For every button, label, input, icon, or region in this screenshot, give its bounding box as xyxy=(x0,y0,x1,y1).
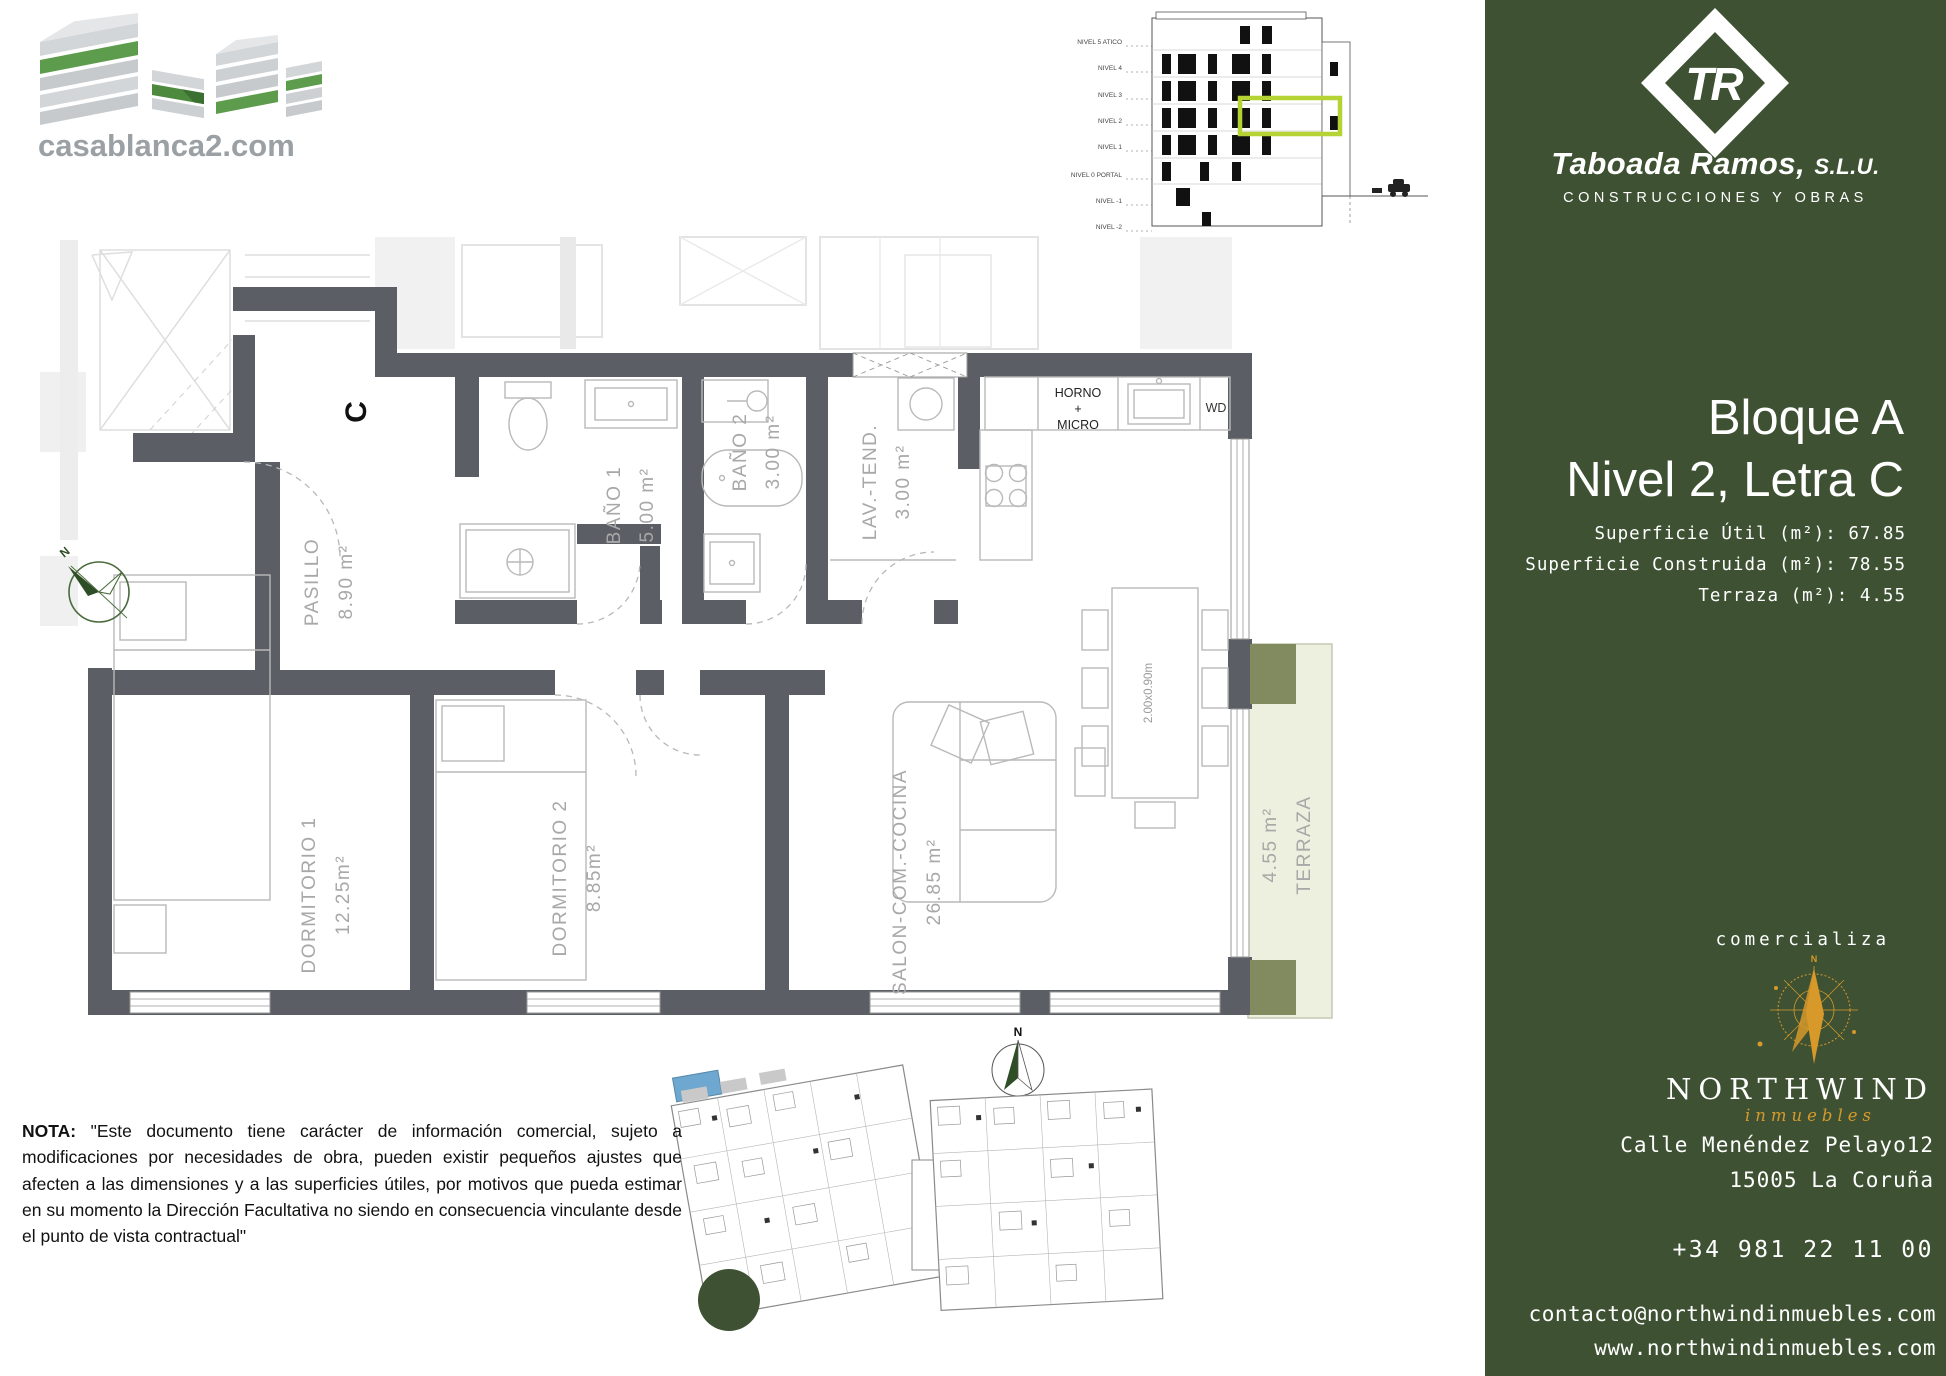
area-construida: Superficie Construida (m²): 78.55 xyxy=(1485,555,1946,575)
level-label: NIVEL 5 ATICO xyxy=(1077,39,1122,46)
agency-name: NORTHWIND xyxy=(1485,1072,1946,1106)
flyer-page: casablanca2.com NIVEL 5 ATICO NIVEL 4 NI… xyxy=(0,0,1946,1376)
room-label: PASILLO xyxy=(302,538,323,626)
area-construida-label: Superficie Construida (m²): xyxy=(1525,555,1836,575)
oven-label-plus: + xyxy=(1074,402,1081,416)
note-title: NOTA: xyxy=(22,1121,76,1141)
legal-note: NOTA: "Este documento tiene carácter de … xyxy=(22,1118,682,1249)
unit-level-title: Nivel 2, Letra C xyxy=(1485,452,1946,508)
dishwasher-label: WD xyxy=(1206,401,1227,415)
area-terraza: Terraza (m²): 4.55 xyxy=(1485,586,1946,606)
table-size-label: 2.00x0.90m xyxy=(1143,663,1155,723)
area-util-value: 67.85 xyxy=(1848,524,1906,544)
area-util: Superficie Útil (m²): 67.85 xyxy=(1485,524,1946,544)
unit-block-title: Bloque A xyxy=(1485,390,1946,446)
floor-plan: PASILLO 8.90 m² BAÑO 1 5.00 m² BAÑO 2 3.… xyxy=(40,230,1340,1030)
taboada-name: Taboada Ramos, S.L.U. xyxy=(1485,146,1946,182)
area-terraza-value: 4.55 xyxy=(1860,586,1906,606)
northwind-compass-icon: N xyxy=(1696,952,1896,1070)
agency-email: contacto@northwindinmuebles.com xyxy=(1485,1302,1946,1326)
car-icon xyxy=(1372,179,1410,197)
area-util-label: Superficie Útil (m²): xyxy=(1595,524,1837,544)
room-area: 12.25m² xyxy=(333,855,354,935)
room-area: 3.00 m² xyxy=(763,415,784,490)
casablanca-buildings-icon xyxy=(40,9,322,125)
casablanca-logo: casablanca2.com xyxy=(18,4,328,169)
room-area: 26.85 m² xyxy=(924,839,945,926)
agency-address-line1: Calle Menéndez Pelayo12 xyxy=(1485,1133,1946,1157)
room-area: 8.85m² xyxy=(584,844,605,912)
room-area: 3.00 m² xyxy=(893,445,914,520)
room-area: 5.00 m² xyxy=(637,468,658,543)
elevation-level-labels: NIVEL 5 ATICO NIVEL 4 NIVEL 3 NIVEL 2 NI… xyxy=(1071,39,1123,231)
level-label: NIVEL 2 xyxy=(1098,118,1122,125)
room-label: BAÑO 2 xyxy=(729,413,751,492)
agency-subtitle: inmuebles xyxy=(1485,1106,1946,1125)
agency-website: www.northwindinmuebles.com xyxy=(1485,1336,1946,1360)
south-compass-icon: N xyxy=(992,1025,1044,1096)
comercializa-label: comercializa xyxy=(1485,930,1946,950)
level-label: NIVEL -1 xyxy=(1096,198,1123,205)
taboada-tagline: CONSTRUCCIONES Y OBRAS xyxy=(1485,190,1946,206)
casablanca-domain: casablanca2.com xyxy=(38,128,295,163)
room-label: BAÑO 1 xyxy=(603,466,625,545)
room-label: SALON-COM.-COCINA xyxy=(890,769,911,995)
taboada-name-suffix: S.L.U. xyxy=(1814,154,1879,179)
room-area: 8.90 m² xyxy=(336,545,357,620)
level-label: NIVEL 1 xyxy=(1098,144,1122,151)
north-label: N xyxy=(1014,1025,1023,1039)
taboada-name-main: Taboada Ramos, xyxy=(1551,146,1805,181)
siteplan-location-dot xyxy=(698,1269,760,1331)
north-label: N xyxy=(1811,954,1818,964)
furniture xyxy=(114,575,1228,980)
ghost-neighbour-unit xyxy=(375,237,1232,349)
taboada-monogram: TR xyxy=(1685,58,1743,110)
level-label: NIVEL 3 xyxy=(1098,92,1122,99)
oven-label: MICRO xyxy=(1057,418,1099,432)
elevation-leaders xyxy=(1126,46,1152,231)
level-label: NIVEL 4 xyxy=(1098,65,1122,72)
oven-label: HORNO xyxy=(1055,386,1102,400)
agency-address-line2: 15005 La Coruña xyxy=(1485,1168,1946,1192)
agency-phone: +34 981 22 11 00 xyxy=(1485,1237,1946,1263)
room-label: DORMITORIO 2 xyxy=(550,800,571,957)
note-body: "Este documento tiene carácter de inform… xyxy=(22,1121,682,1246)
fixtures xyxy=(460,377,1230,598)
area-terraza-label: Terraza (m²): xyxy=(1698,586,1848,606)
room-label: TERRAZA xyxy=(1294,795,1315,894)
room-label: LAV.-TEND. xyxy=(860,424,881,540)
siteplan-wing-right xyxy=(930,1089,1163,1310)
site-plan: N xyxy=(650,1025,1190,1365)
taboada-logo: TR xyxy=(1485,0,1946,215)
sidebar: TR Taboada Ramos, S.L.U. CONSTRUCCIONES … xyxy=(1485,0,1946,1376)
room-label: DORMITORIO 1 xyxy=(299,817,320,974)
elevation-facade xyxy=(1152,12,1428,226)
top-wall-window xyxy=(853,353,967,377)
level-label: NIVEL 0 PORTAL xyxy=(1071,172,1123,179)
building-elevation: NIVEL 5 ATICO NIVEL 4 NIVEL 3 NIVEL 2 NI… xyxy=(1055,0,1435,245)
room-area: 4.55 m² xyxy=(1260,808,1281,883)
unit-letter-label: C xyxy=(340,401,373,423)
siteplan-wing-left xyxy=(667,1038,940,1317)
area-construida-value: 78.55 xyxy=(1848,555,1906,575)
